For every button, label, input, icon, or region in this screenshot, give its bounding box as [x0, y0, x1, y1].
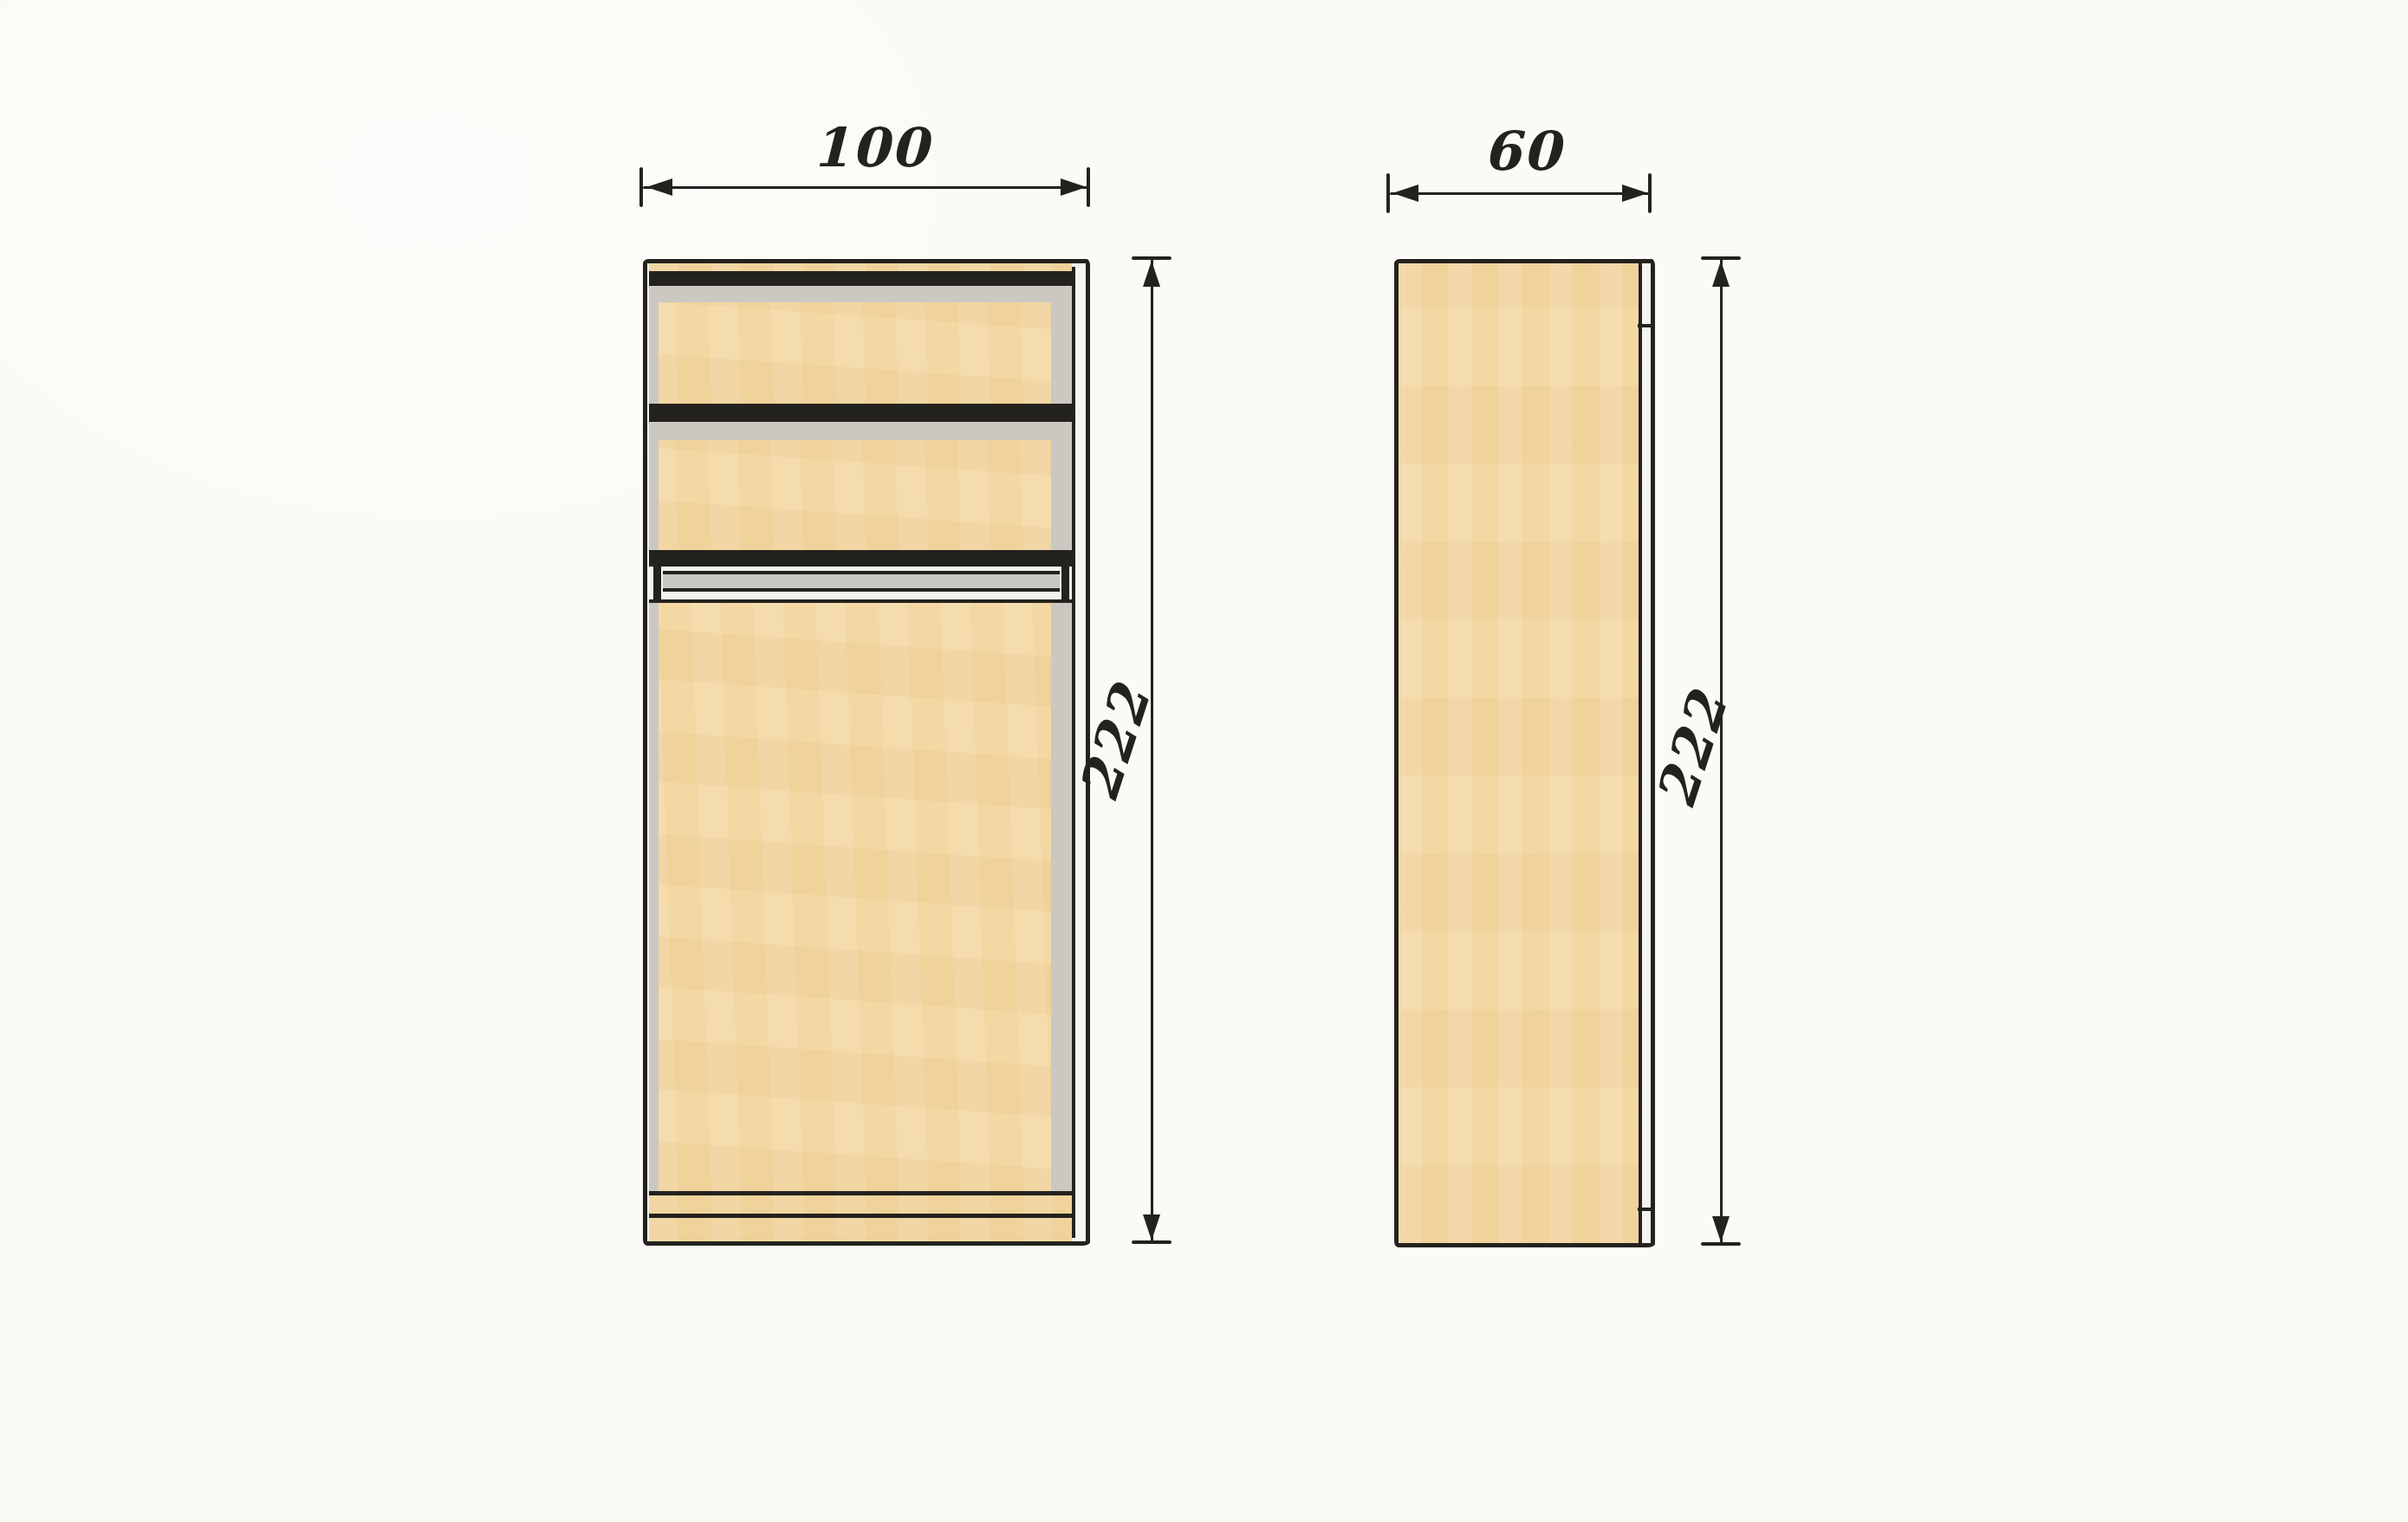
- front-compartment-2: [649, 440, 1072, 550]
- rail-bracket-left: [653, 567, 661, 599]
- front-top-edge-strip: [649, 263, 1072, 271]
- side-view: [1394, 259, 1655, 1247]
- side-back-panel-line: [1639, 263, 1642, 1243]
- front-top-shelf: [649, 271, 1072, 286]
- front-shelf-3: [649, 550, 1072, 567]
- rail-bracket-right: [1061, 567, 1069, 599]
- sketch-canvas: 100 60 222 222: [0, 0, 2408, 1522]
- hanging-rail: [663, 571, 1060, 592]
- dim-arrow-up: [1712, 261, 1730, 287]
- dim-arrow-left: [1392, 185, 1418, 202]
- front-width-label: 100: [784, 111, 957, 184]
- front-plinth: [649, 1218, 1072, 1241]
- front-top-shelf-shadow: [649, 286, 1072, 302]
- front-main-compartment: [649, 599, 1072, 1191]
- dim-arrow-right: [1061, 178, 1087, 196]
- dim-arrow-right: [1622, 185, 1648, 202]
- front-view: [643, 259, 1090, 1246]
- dim-arrow-up: [1143, 261, 1160, 287]
- dim-arrow-down: [1143, 1214, 1160, 1240]
- dim-line: [1390, 192, 1652, 195]
- side-back-panel-gap: [1642, 263, 1651, 1243]
- dim-line: [1151, 259, 1153, 1243]
- dim-line: [643, 186, 1090, 189]
- dim-arrow-left: [646, 178, 672, 196]
- front-shelf-2: [649, 404, 1072, 422]
- front-shelf-2-shadow: [649, 422, 1072, 440]
- front-compartment-1: [649, 302, 1072, 404]
- dim-arrow-down: [1712, 1216, 1730, 1242]
- hanging-rail-zone: [649, 567, 1072, 599]
- side-width-label: 60: [1436, 114, 1609, 187]
- front-base-strip: [649, 1195, 1072, 1214]
